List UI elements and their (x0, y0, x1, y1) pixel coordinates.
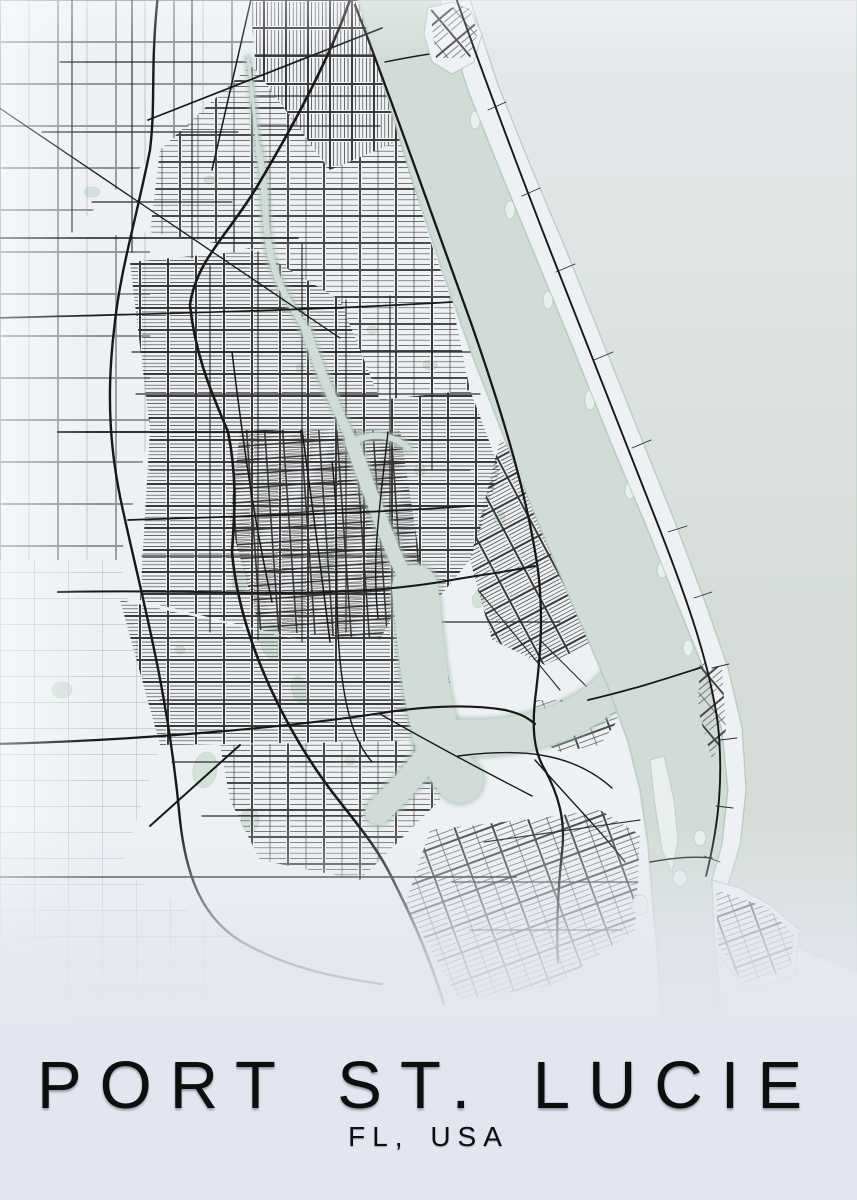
poster-footer: PORT ST. LUCIE FL, USA (0, 1040, 857, 1200)
map-fade-overlay (0, 820, 857, 1040)
city-map-graphic (0, 0, 857, 1040)
screenshot-stage: PORT ST. LUCIE FL, USA (0, 0, 857, 1200)
map-poster: PORT ST. LUCIE FL, USA (0, 0, 857, 1200)
poster-subtitle: FL, USA (0, 1121, 857, 1153)
poster-title: PORT ST. LUCIE (0, 1040, 857, 1119)
